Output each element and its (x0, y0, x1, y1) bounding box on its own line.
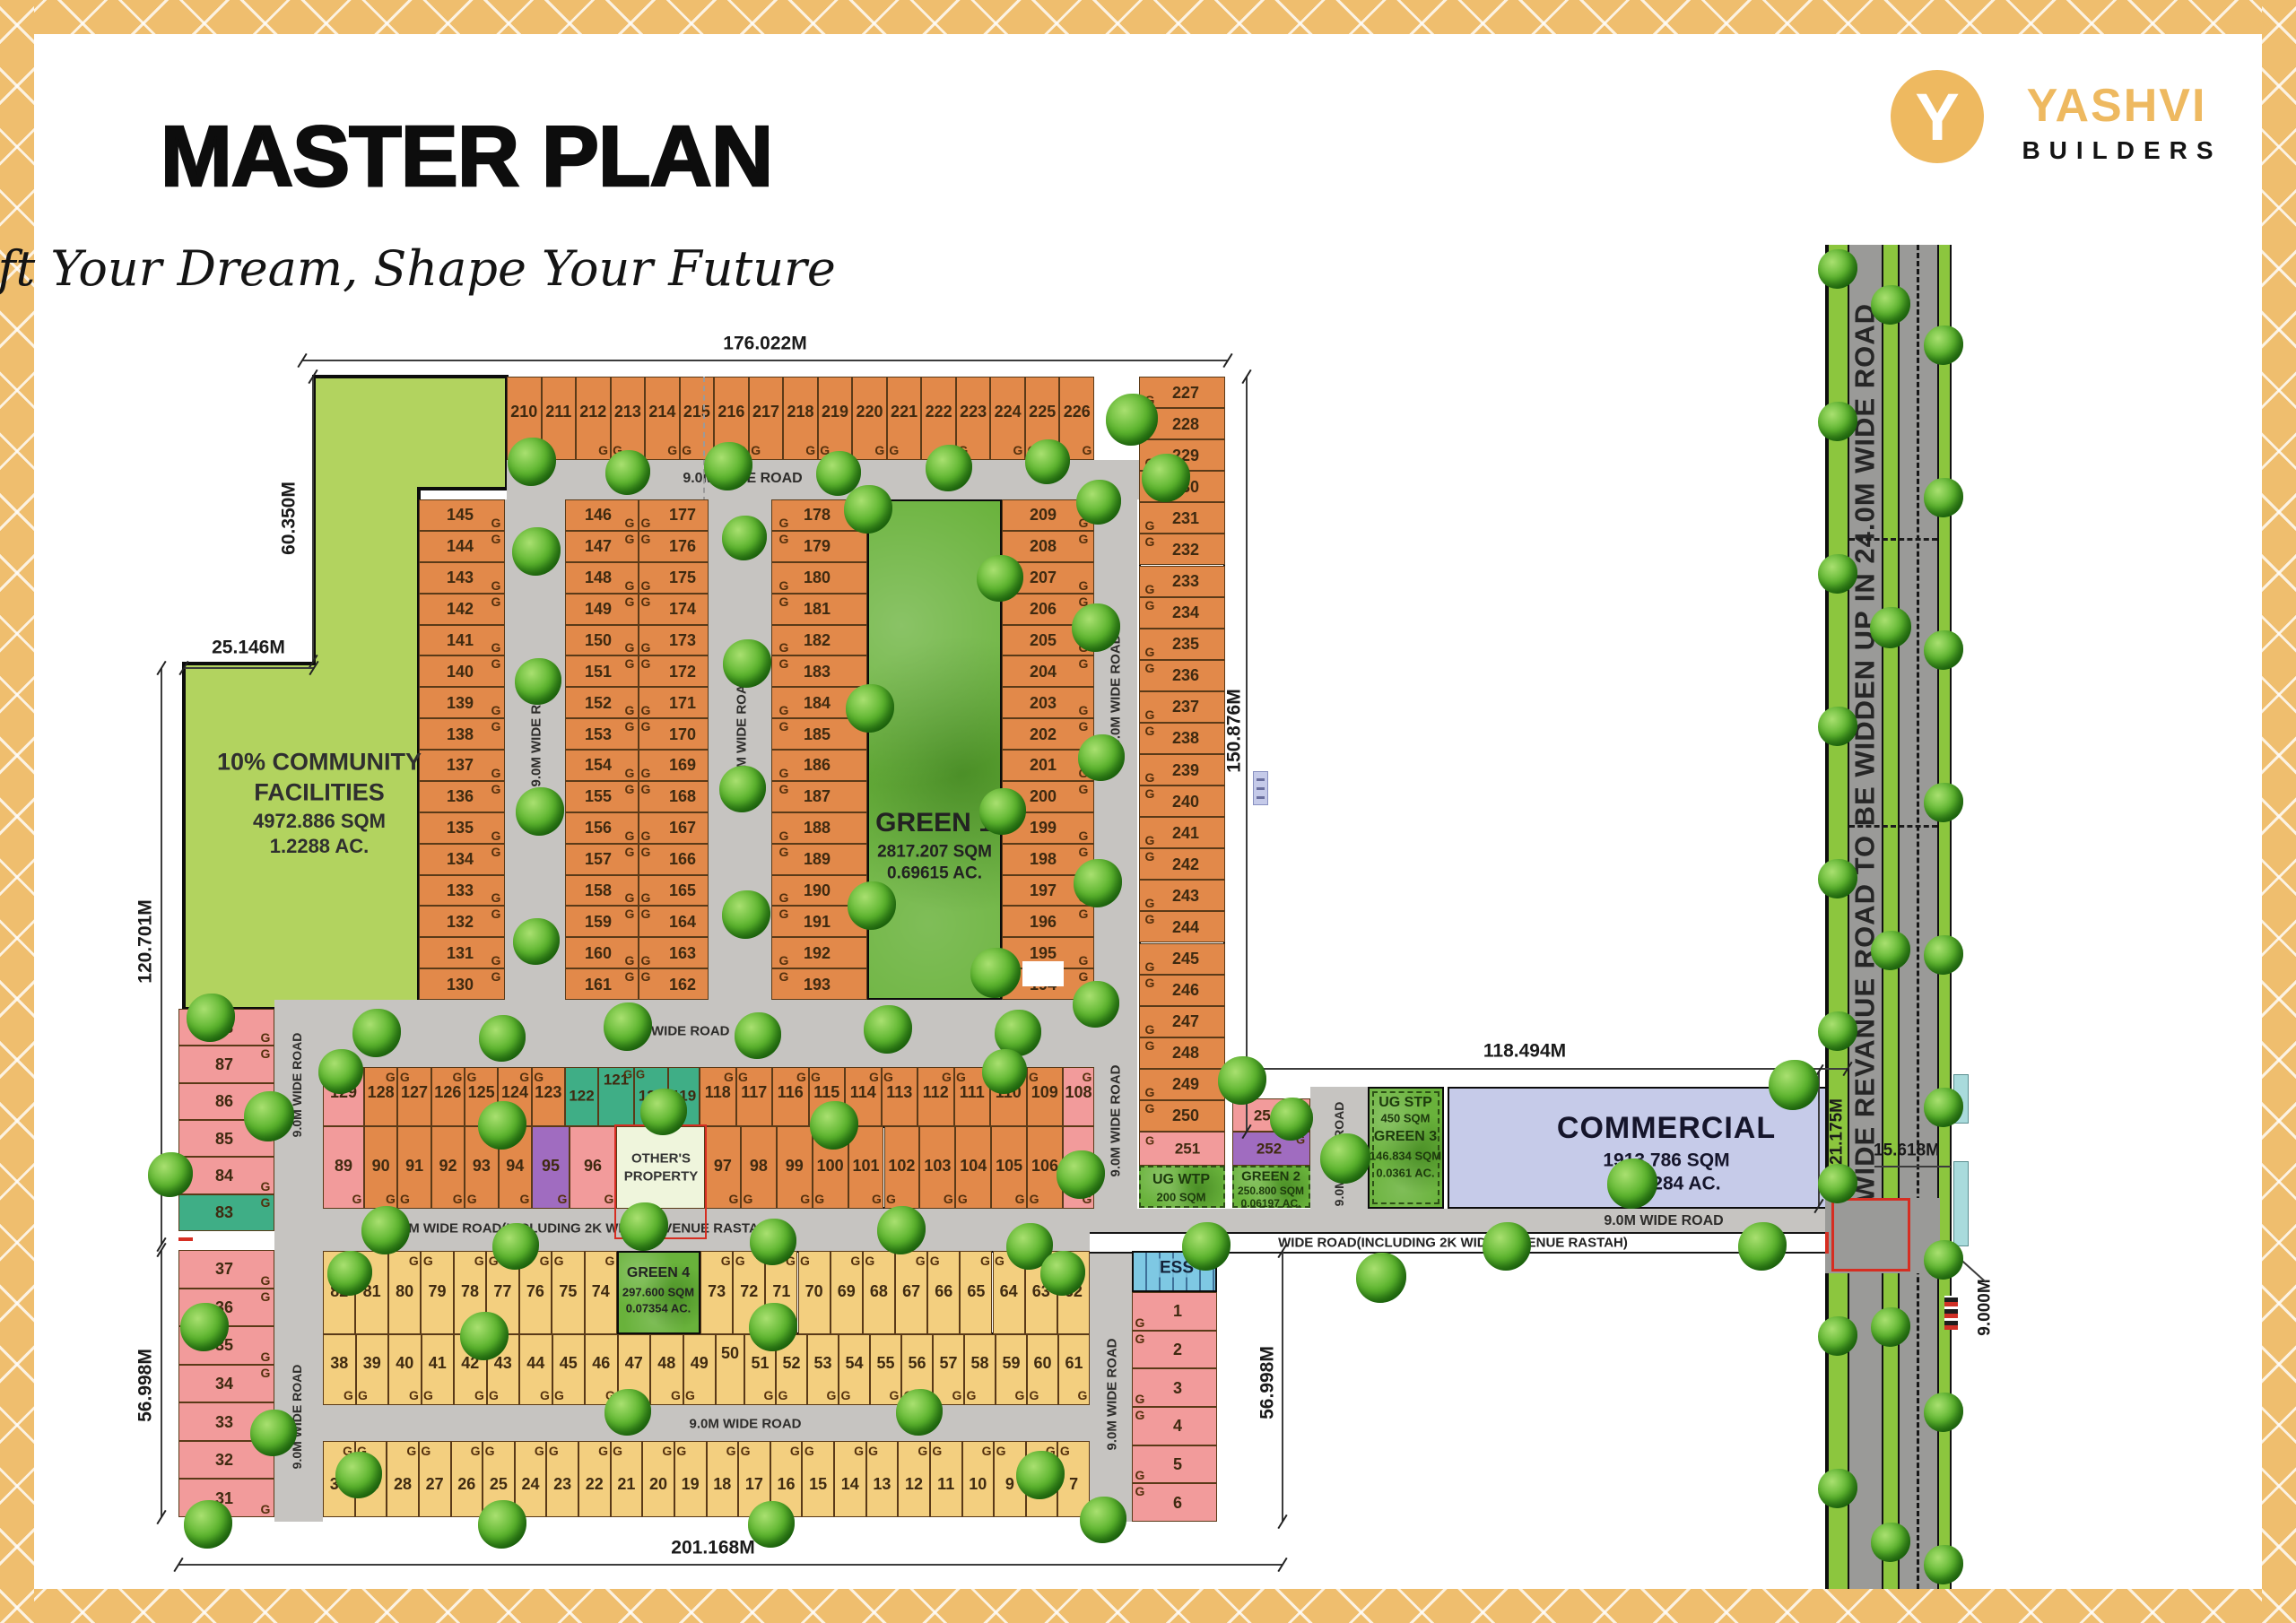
garage-mark: G (667, 444, 677, 456)
garage-mark: G (625, 970, 635, 983)
highway-green-left (1827, 245, 1849, 1589)
green3-area-text: 146.834 SQM (1370, 1150, 1441, 1162)
plot-num-234: 234 (1172, 604, 1199, 621)
garage-mark: G (491, 720, 501, 733)
garage-mark: G (605, 1254, 615, 1267)
commercial-name: COMMERCIAL (1557, 1113, 1776, 1143)
plot-num-55: 55 (876, 1355, 894, 1371)
garage-mark: G (996, 1445, 1006, 1457)
others-line2: PROPERTY (624, 1170, 699, 1184)
plot-num-163: 163 (669, 945, 696, 961)
garage-mark: G (682, 444, 691, 456)
plot-num-165: 165 (669, 882, 696, 898)
garage-mark: G (872, 1193, 882, 1205)
plot-num-20: 20 (649, 1476, 667, 1492)
plot-num-211: 211 (545, 404, 571, 420)
garage-mark: G (1145, 897, 1155, 909)
plot-num-5: 5 (1173, 1456, 1182, 1472)
plot-num-104: 104 (960, 1158, 987, 1174)
plot-num-248: 248 (1172, 1045, 1199, 1061)
garage-mark: G (625, 767, 635, 779)
garage-mark: G (1145, 787, 1155, 800)
plot-num-60: 60 (1033, 1355, 1051, 1371)
garage-mark: G (491, 657, 501, 670)
divider-dashed (703, 377, 705, 502)
dim-left-step-line (184, 667, 314, 669)
plot-num-109: 109 (1031, 1084, 1058, 1100)
plot-num-14: 14 (841, 1476, 859, 1492)
garage-mark: G (623, 1069, 632, 1081)
garage-mark: G (474, 1254, 484, 1267)
garage-mark: G (625, 641, 635, 654)
garage-mark: G (558, 1193, 568, 1205)
dim-commercial-depth-label: 21.175M (1829, 1098, 1846, 1165)
plot-num-78: 78 (461, 1283, 479, 1299)
garage-mark: G (1145, 913, 1155, 925)
plot-num-149: 149 (585, 601, 612, 617)
plot-num-115: 115 (813, 1084, 839, 1100)
plot-num-47: 47 (625, 1355, 643, 1371)
garage-mark: G (641, 970, 651, 983)
plot-num-114: 114 (850, 1084, 876, 1100)
tree-icon (1924, 1393, 1963, 1432)
plot-num-241: 241 (1172, 825, 1199, 841)
garage-mark: G (261, 1196, 271, 1209)
plot-num-209: 209 (1030, 507, 1057, 523)
garage-mark: G (800, 1193, 810, 1205)
plot-num-116: 116 (778, 1084, 804, 1100)
garage-mark: G (554, 1254, 564, 1267)
plot-num-196: 196 (1030, 914, 1057, 930)
plot-num-57: 57 (939, 1355, 957, 1371)
plot-num-197: 197 (1030, 882, 1057, 898)
dim-right-bottom-line (1282, 1251, 1283, 1522)
garage-mark: G (1145, 599, 1155, 612)
garage-mark: G (804, 1445, 814, 1457)
garage-mark: G (467, 1071, 477, 1083)
plot-num-140: 140 (447, 664, 474, 680)
green4-name: GREEN 4 (627, 1266, 690, 1280)
plot-num-98: 98 (750, 1158, 768, 1174)
garage-mark: G (554, 1389, 564, 1402)
garage-mark: G (604, 1193, 614, 1205)
garage-mark: G (995, 1254, 1004, 1267)
garage-mark: G (467, 1193, 477, 1205)
tree-icon (1924, 1545, 1963, 1584)
plot-num-137: 137 (447, 757, 474, 773)
plot-num-168: 168 (669, 788, 696, 804)
plot-num-45: 45 (560, 1355, 578, 1371)
tree-icon (1218, 1056, 1266, 1105)
plot-num-157: 157 (585, 851, 612, 867)
tree-icon (184, 1500, 232, 1549)
garage-mark: G (261, 1180, 271, 1193)
plot-num-187: 187 (804, 788, 831, 804)
community-acres: 1.2288 AC. (270, 837, 369, 856)
garage-mark: G (625, 954, 635, 967)
garage-mark: G (519, 1071, 529, 1083)
garage-mark: G (352, 1193, 362, 1205)
plot-num-233: 233 (1172, 573, 1199, 589)
plot-num-198: 198 (1030, 851, 1057, 867)
garage-mark: G (764, 1389, 774, 1402)
plot-num-242: 242 (1172, 856, 1199, 872)
plot-num-10: 10 (969, 1476, 987, 1492)
plot-num-237: 237 (1172, 699, 1199, 715)
garage-mark: G (625, 657, 635, 670)
plot-num-195: 195 (1030, 945, 1057, 961)
plot-num-25: 25 (490, 1476, 508, 1492)
plot-num-243: 243 (1172, 888, 1199, 904)
plot-num-113: 113 (886, 1084, 912, 1100)
tree-icon (1924, 325, 1963, 365)
garage-mark: G (423, 1254, 433, 1267)
plot-num-99: 99 (786, 1158, 804, 1174)
plot-num-38: 38 (330, 1355, 348, 1371)
plot-num-191: 191 (804, 914, 831, 930)
plot-num-219: 219 (822, 404, 848, 420)
garage-mark: G (1145, 850, 1155, 863)
garage-mark: G (685, 1389, 695, 1402)
garage-mark: G (1079, 783, 1089, 795)
plot-num-40: 40 (396, 1355, 413, 1371)
plot-num-173: 173 (669, 632, 696, 648)
border-top (0, 0, 2296, 34)
garage-mark: G (1145, 725, 1155, 737)
plot-num-83: 83 (215, 1204, 233, 1220)
plot-num-174: 174 (669, 601, 696, 617)
plot-num-235: 235 (1172, 636, 1199, 652)
plot-num-159: 159 (585, 914, 612, 930)
dim-junction-line (1874, 1166, 1951, 1167)
garage-mark: G (491, 954, 501, 967)
plot-num-227: 227 (1172, 385, 1199, 401)
highway-green-right (1937, 245, 1952, 1589)
tree-icon (748, 1501, 795, 1548)
plot-num-7: 7 (1069, 1476, 1078, 1492)
page-title: MASTER PLAN (161, 114, 772, 200)
garage-mark: G (491, 970, 501, 983)
garage-mark: G (453, 1071, 463, 1083)
plot-num-12: 12 (905, 1476, 923, 1492)
plot-num-131: 131 (447, 945, 474, 961)
garage-mark: G (779, 846, 789, 858)
garage-mark: G (944, 1193, 953, 1205)
plot-num-33: 33 (215, 1414, 233, 1430)
plot-num-102: 102 (888, 1158, 915, 1174)
hatch-marker (1944, 1296, 1958, 1330)
garage-mark: G (796, 1071, 806, 1083)
garage-mark: G (641, 516, 651, 529)
plot-num-193: 193 (804, 976, 831, 993)
garage-mark: G (1013, 444, 1022, 456)
garage-mark: G (491, 767, 501, 779)
garage-mark: G (625, 579, 635, 592)
plot-num-217: 217 (752, 404, 779, 420)
garage-mark: G (1145, 646, 1155, 658)
plot-num-27: 27 (426, 1476, 444, 1492)
garage-mark: G (598, 1445, 608, 1457)
plot-num-225: 225 (1029, 404, 1056, 420)
plot-num-139: 139 (447, 695, 474, 711)
border-right (2262, 0, 2296, 1623)
garage-mark: G (1145, 1102, 1155, 1115)
plot-num-239: 239 (1172, 762, 1199, 778)
plot-num-144: 144 (447, 538, 474, 554)
road-label-yellow: 9.0M WIDE ROAD (689, 1418, 801, 1431)
plot-num-117: 117 (741, 1084, 767, 1100)
garage-mark: G (1145, 519, 1155, 532)
plot-num-214: 214 (648, 404, 675, 420)
tree-icon (1356, 1253, 1406, 1303)
plot-num-153: 153 (585, 726, 612, 742)
plot-num-143: 143 (447, 569, 474, 586)
garage-mark: G (1015, 1193, 1025, 1205)
plot-num-184: 184 (804, 695, 831, 711)
tree-icon (1924, 630, 1963, 670)
garage-mark: G (534, 1071, 544, 1083)
plot-num-223: 223 (960, 404, 987, 420)
plot-num-2: 2 (1173, 1341, 1182, 1358)
garage-mark: G (641, 595, 651, 608)
plot-num-244: 244 (1172, 919, 1199, 935)
garage-mark: G (540, 1389, 550, 1402)
garage-mark: G (409, 1389, 419, 1402)
plot-num-9: 9 (1005, 1476, 1014, 1492)
garage-mark: G (625, 891, 635, 904)
plot-num-22: 22 (586, 1476, 604, 1492)
dim-right-col-line (1246, 377, 1248, 1132)
garage-mark: G (1145, 1023, 1155, 1036)
highway-label: 5K WIDE REVANUE ROAD TO BE WIDDEN UP IN … (1851, 303, 1879, 1248)
garage-mark: G (1145, 960, 1155, 973)
road-label-v3a: 9.0M WIDE ROAD (1109, 634, 1123, 746)
road-label-commercial: 9.0M WIDE ROAD (1604, 1214, 1723, 1228)
garage-mark: G (641, 533, 651, 545)
garage-mark: G (598, 444, 608, 456)
plot-num-183: 183 (804, 664, 831, 680)
garage-mark: G (641, 720, 651, 733)
garage-mark: G (641, 829, 651, 842)
garage-mark: G (724, 1071, 734, 1083)
garage-mark: G (721, 1254, 731, 1267)
road-label-v3b: 9.0M WIDE ROAD (1109, 1064, 1123, 1176)
plot-num-158: 158 (585, 882, 612, 898)
garage-mark: G (779, 954, 789, 967)
garage-mark: G (491, 846, 501, 858)
plot-num-51: 51 (751, 1355, 769, 1371)
plot-num-220: 220 (857, 404, 883, 420)
plot-num-192: 192 (804, 945, 831, 961)
garage-mark: G (967, 1389, 977, 1402)
garage-mark: G (779, 704, 789, 716)
plot-num-190: 190 (804, 882, 831, 898)
garage-mark: G (1030, 1193, 1039, 1205)
plot-num-250: 250 (1172, 1107, 1199, 1124)
garage-mark: G (743, 1193, 752, 1205)
community-line2: FACILITIES (254, 781, 385, 805)
road-label-revenue-left: 9.0M WIDE ROAD(INCLUDING 2K WIDE REVENUE… (389, 1222, 772, 1236)
highway-cross-1 (1849, 538, 1937, 541)
plot-num-100: 100 (817, 1158, 844, 1174)
brand-sub: BUILDERS (2022, 138, 2222, 163)
community-line1: 10% COMMUNITY (217, 751, 422, 775)
plot-num-37: 37 (215, 1261, 233, 1277)
plot-num-54: 54 (845, 1355, 863, 1371)
garage-mark: G (625, 829, 635, 842)
plot-num-23: 23 (553, 1476, 571, 1492)
garage-mark: G (406, 1445, 416, 1457)
ugstp-name: UG STP (1378, 1096, 1432, 1110)
plot-num-85: 85 (215, 1131, 233, 1147)
garage-mark: G (491, 516, 501, 529)
garage-mark: G (491, 783, 501, 795)
garage-mark: G (1135, 1393, 1145, 1405)
garage-mark: G (261, 1031, 271, 1044)
plot-num-53: 53 (813, 1355, 831, 1371)
logo-y-glyph: Y (1915, 79, 1959, 155)
plot-num-182: 182 (804, 632, 831, 648)
plot-num-46: 46 (592, 1355, 610, 1371)
garage-mark: G (489, 1389, 499, 1402)
green1-name: GREEN 1 (875, 810, 994, 837)
plot-num-1: 1 (1173, 1303, 1182, 1319)
plot-num-96: 96 (584, 1158, 602, 1174)
garage-mark: G (485, 1445, 495, 1457)
tree-icon (1182, 1222, 1231, 1271)
plot-num-79: 79 (429, 1283, 447, 1299)
red-mark-left (178, 1237, 193, 1241)
plot-num-122: 122 (569, 1089, 594, 1104)
plot-num-203: 203 (1030, 695, 1057, 711)
plot-num-186: 186 (804, 757, 831, 773)
garage-mark: G (625, 704, 635, 716)
plot-num-162: 162 (669, 976, 696, 993)
garage-mark: G (491, 595, 501, 608)
plot-num-89: 89 (335, 1158, 352, 1174)
garage-mark: G (261, 1047, 271, 1060)
garage-mark: G (1079, 954, 1089, 967)
garage-mark: G (386, 1071, 396, 1083)
garage-mark: G (1029, 1071, 1039, 1083)
garage-mark: G (869, 1071, 879, 1083)
garage-mark: G (641, 891, 651, 904)
plot-num-90: 90 (372, 1158, 390, 1174)
plot-num-177: 177 (669, 507, 696, 523)
plot-num-130: 130 (447, 976, 474, 993)
dim-bottom-label: 201.168M (671, 1539, 754, 1558)
plot-num-43: 43 (494, 1355, 512, 1371)
plot-num-77: 77 (493, 1283, 511, 1299)
garage-mark: G (613, 1445, 622, 1457)
plot-num-127: 127 (401, 1084, 428, 1100)
plot-num-155: 155 (585, 788, 612, 804)
plot-num-175: 175 (669, 569, 696, 586)
plot-num-136: 136 (447, 788, 474, 804)
garage-mark: G (453, 1193, 463, 1205)
garage-mark: G (841, 1389, 851, 1402)
plot-num-61: 61 (1065, 1355, 1083, 1371)
tree-icon (1924, 935, 1963, 975)
garage-mark: G (942, 1071, 952, 1083)
dim-left-bottom-label: 56.998M (136, 1349, 155, 1422)
plot-num-202: 202 (1030, 726, 1057, 742)
plot-num-105: 105 (996, 1158, 1022, 1174)
plot-num-56: 56 (908, 1355, 926, 1371)
garage-mark: G (1145, 583, 1155, 595)
tree-icon (1924, 478, 1963, 517)
plot-num-106: 106 (1031, 1158, 1058, 1174)
plot-num-210: 210 (510, 404, 537, 420)
green3-acres: 0.0361 AC. (1376, 1167, 1434, 1179)
plot-num-34: 34 (215, 1376, 233, 1392)
garage-mark: G (751, 444, 761, 456)
plot-num-179: 179 (804, 538, 831, 554)
plot-num-151: 151 (585, 664, 612, 680)
garage-mark: G (641, 783, 651, 795)
plot-num-141: 141 (447, 632, 474, 648)
garage-mark: G (958, 1193, 968, 1205)
plot-num-185: 185 (804, 726, 831, 742)
garage-mark: G (540, 1254, 550, 1267)
garage-mark: G (779, 970, 789, 983)
plot-num-205: 205 (1030, 632, 1057, 648)
garage-mark: G (883, 1071, 893, 1083)
green4-area-text: 297.600 SQM (622, 1287, 694, 1298)
green1-area-text: 2817.207 SQM (877, 844, 992, 861)
garage-mark: G (779, 657, 789, 670)
ugwtp-name: UG WTP (1152, 1173, 1210, 1187)
plot-num-24: 24 (522, 1476, 540, 1492)
white-patch (1022, 961, 1064, 986)
plot-num-26: 26 (457, 1476, 475, 1492)
garage-mark: G (735, 1254, 745, 1267)
junction-red-dash (1825, 1232, 1829, 1254)
garage-mark: G (421, 1445, 430, 1457)
garage-mark: G (1030, 1389, 1039, 1402)
garage-mark: G (1145, 662, 1155, 674)
plot-num-142: 142 (447, 601, 474, 617)
road-label-revenue-right: WIDE ROAD(INCLUDING 2K WIDE REVENUE RAST… (1278, 1237, 1628, 1250)
green2-area-text: 250.800 SQM (1238, 1185, 1304, 1196)
garage-mark: G (918, 1445, 927, 1457)
plot-num-123: 123 (535, 1084, 561, 1100)
garage-mark: G (865, 1254, 874, 1267)
plot-num-72: 72 (740, 1283, 758, 1299)
legend-mini-d1 (1257, 778, 1265, 781)
plot-num-65: 65 (967, 1283, 985, 1299)
plot-num-172: 172 (669, 664, 696, 680)
garage-mark: G (1079, 657, 1089, 670)
garage-mark: G (1145, 771, 1155, 784)
plot-num-13: 13 (873, 1476, 891, 1492)
plot-num-240: 240 (1172, 794, 1199, 810)
garage-mark: G (779, 579, 789, 592)
plot-num-70: 70 (805, 1283, 823, 1299)
garage-mark: G (1083, 444, 1092, 456)
plot-num-94: 94 (506, 1158, 524, 1174)
plot-num-170: 170 (669, 726, 696, 742)
garage-mark: G (805, 444, 815, 456)
plot-num-200: 200 (1030, 788, 1057, 804)
garage-mark: G (1078, 1389, 1088, 1402)
garage-mark: G (1079, 829, 1089, 842)
page-subtitle: Craft Your Dream, Shape Your Future (0, 245, 836, 293)
garage-mark: G (811, 1071, 821, 1083)
garage-mark: G (491, 579, 501, 592)
garage-mark: G (932, 1445, 942, 1457)
garage-mark: G (779, 829, 789, 842)
